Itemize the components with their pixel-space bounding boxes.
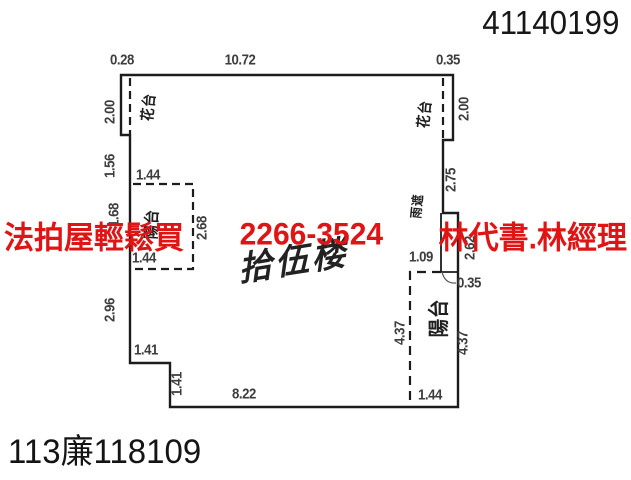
dimension-label: 0.28 xyxy=(110,52,134,69)
dimension-label: 0.35 xyxy=(436,52,460,69)
dimension-label: 2.00 xyxy=(456,97,473,121)
advertisement-overlay: 法拍屋輕鬆買 2266-3524 林代書.林經理 xyxy=(0,215,631,253)
leader-arc xyxy=(442,272,456,283)
plan-corner-number: 41140199 xyxy=(482,4,619,42)
ad-phone-number: 2266-3524 xyxy=(240,217,383,252)
dimension-label: 1.44 xyxy=(418,387,442,404)
dimension-label: 1.41 xyxy=(134,342,158,359)
scanned-survey-page: 0.2810.720.352.001.561.441.682.681.442.9… xyxy=(0,0,631,480)
dimension-label: 10.72 xyxy=(225,52,256,69)
area-label: 花台 xyxy=(412,99,436,129)
dimension-label: 2.00 xyxy=(102,100,119,124)
dimension-label: 1.41 xyxy=(169,372,186,396)
dimension-label: 8.22 xyxy=(232,386,256,403)
dimension-label: 2.96 xyxy=(102,298,119,322)
dimension-label: 1.44 xyxy=(136,167,160,184)
area-label: 花台 xyxy=(136,92,160,122)
case-file-number: 113廉118109 xyxy=(8,424,201,473)
dimension-label: 4.37 xyxy=(392,321,409,345)
dimension-label: 2.75 xyxy=(443,168,460,192)
area-label: 陽台 xyxy=(423,299,453,338)
dimension-label: 0.35 xyxy=(457,275,481,292)
ad-text-right: 林代書.林經理 xyxy=(439,212,627,258)
dimension-label: 4.37 xyxy=(455,331,472,355)
dimension-label: 1.56 xyxy=(102,154,119,178)
ad-text-left: 法拍屋輕鬆買 xyxy=(4,212,184,258)
